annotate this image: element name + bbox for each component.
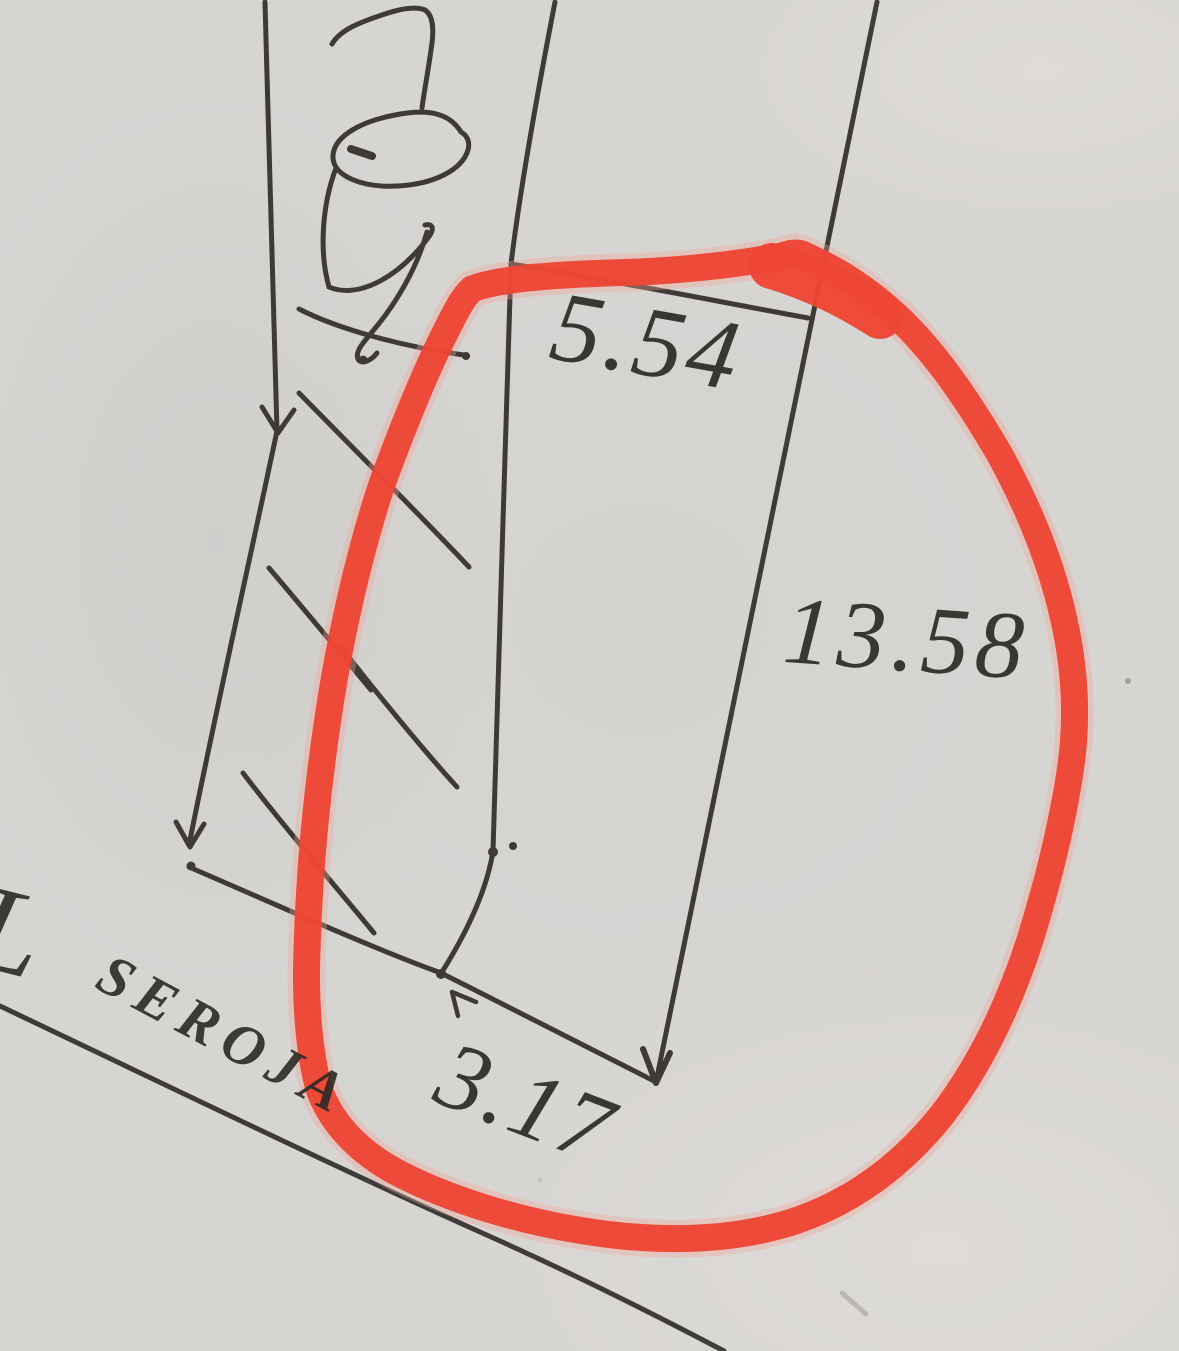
ink-dot [488,847,498,857]
ink-dot [187,862,196,871]
ink-dot [436,969,446,979]
ink-dot [359,356,368,365]
paper-speck [538,1178,543,1183]
ink-dot [509,842,517,850]
ink-dot [462,352,470,360]
dimension-side-length: 13.58 [780,574,1033,702]
photo-of-plot-sketch: 5.54 13.58 3.17 L SEROJA [0,0,1179,1351]
paper-speck [1125,678,1131,684]
